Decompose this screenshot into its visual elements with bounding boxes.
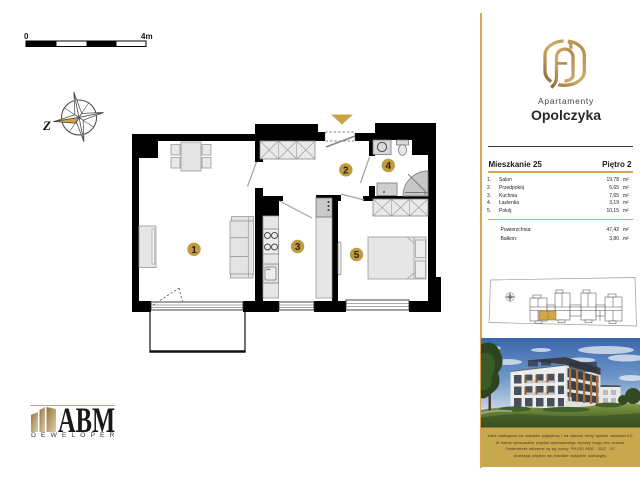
svg-text:3: 3 (295, 242, 301, 253)
svg-text:0: 0 (24, 32, 29, 41)
svg-text:4m: 4m (141, 32, 153, 41)
svg-text:5: 5 (354, 250, 360, 261)
svg-text:4: 4 (386, 161, 392, 172)
svg-text:Z: Z (42, 118, 51, 133)
svg-text:1: 1 (191, 245, 197, 256)
svg-text:2: 2 (343, 165, 349, 176)
